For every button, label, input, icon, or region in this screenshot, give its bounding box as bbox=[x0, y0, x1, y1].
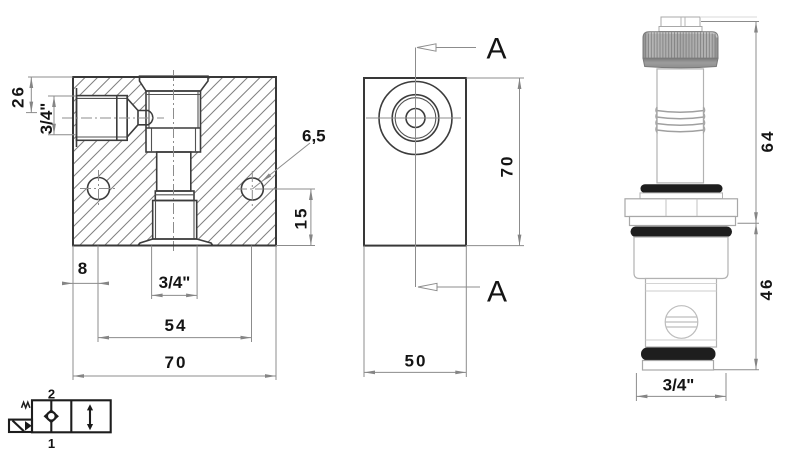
svg-text:26: 26 bbox=[9, 85, 28, 108]
svg-text:50: 50 bbox=[405, 352, 428, 371]
svg-text:64: 64 bbox=[758, 130, 777, 153]
svg-text:A: A bbox=[487, 33, 507, 66]
svg-text:A: A bbox=[487, 276, 507, 309]
svg-text:6,5: 6,5 bbox=[302, 127, 326, 146]
svg-text:3/4": 3/4" bbox=[663, 376, 695, 395]
svg-text:70: 70 bbox=[165, 353, 188, 372]
svg-text:70: 70 bbox=[498, 155, 517, 178]
svg-text:3/4": 3/4" bbox=[37, 103, 56, 135]
svg-text:46: 46 bbox=[757, 278, 776, 301]
svg-text:15: 15 bbox=[292, 207, 311, 230]
svg-text:54: 54 bbox=[165, 316, 188, 335]
svg-text:3/4": 3/4" bbox=[159, 273, 191, 292]
svg-text:8: 8 bbox=[78, 259, 87, 278]
svg-text:1: 1 bbox=[48, 436, 55, 450]
svg-text:2: 2 bbox=[48, 387, 55, 402]
